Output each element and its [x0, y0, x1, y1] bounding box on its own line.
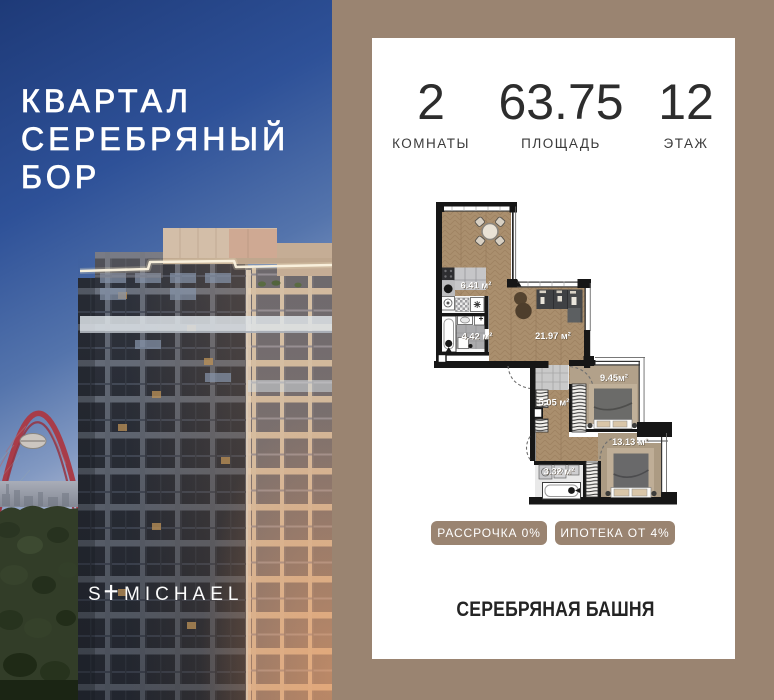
svg-text:S: S [88, 584, 106, 605]
svg-text:СЕРЕБРЯНЫЙ: СЕРЕБРЯНЫЙ [21, 121, 289, 157]
svg-text:13.13 м²: 13.13 м² [612, 437, 648, 447]
svg-text:4.42 м²: 4.42 м² [462, 332, 493, 342]
svg-text:21.97 м²: 21.97 м² [535, 331, 571, 341]
svg-text:MICHAEL: MICHAEL [124, 584, 243, 605]
svg-text:6.41 м²: 6.41 м² [461, 281, 492, 291]
svg-text:5.05 м²: 5.05 м² [539, 398, 570, 408]
svg-text:9.45м²: 9.45м² [600, 373, 628, 383]
svg-text:3.32 м²: 3.32 м² [544, 467, 575, 477]
svg-text:БОР: БОР [21, 159, 100, 195]
svg-text:КВАРТАЛ: КВАРТАЛ [21, 83, 192, 119]
